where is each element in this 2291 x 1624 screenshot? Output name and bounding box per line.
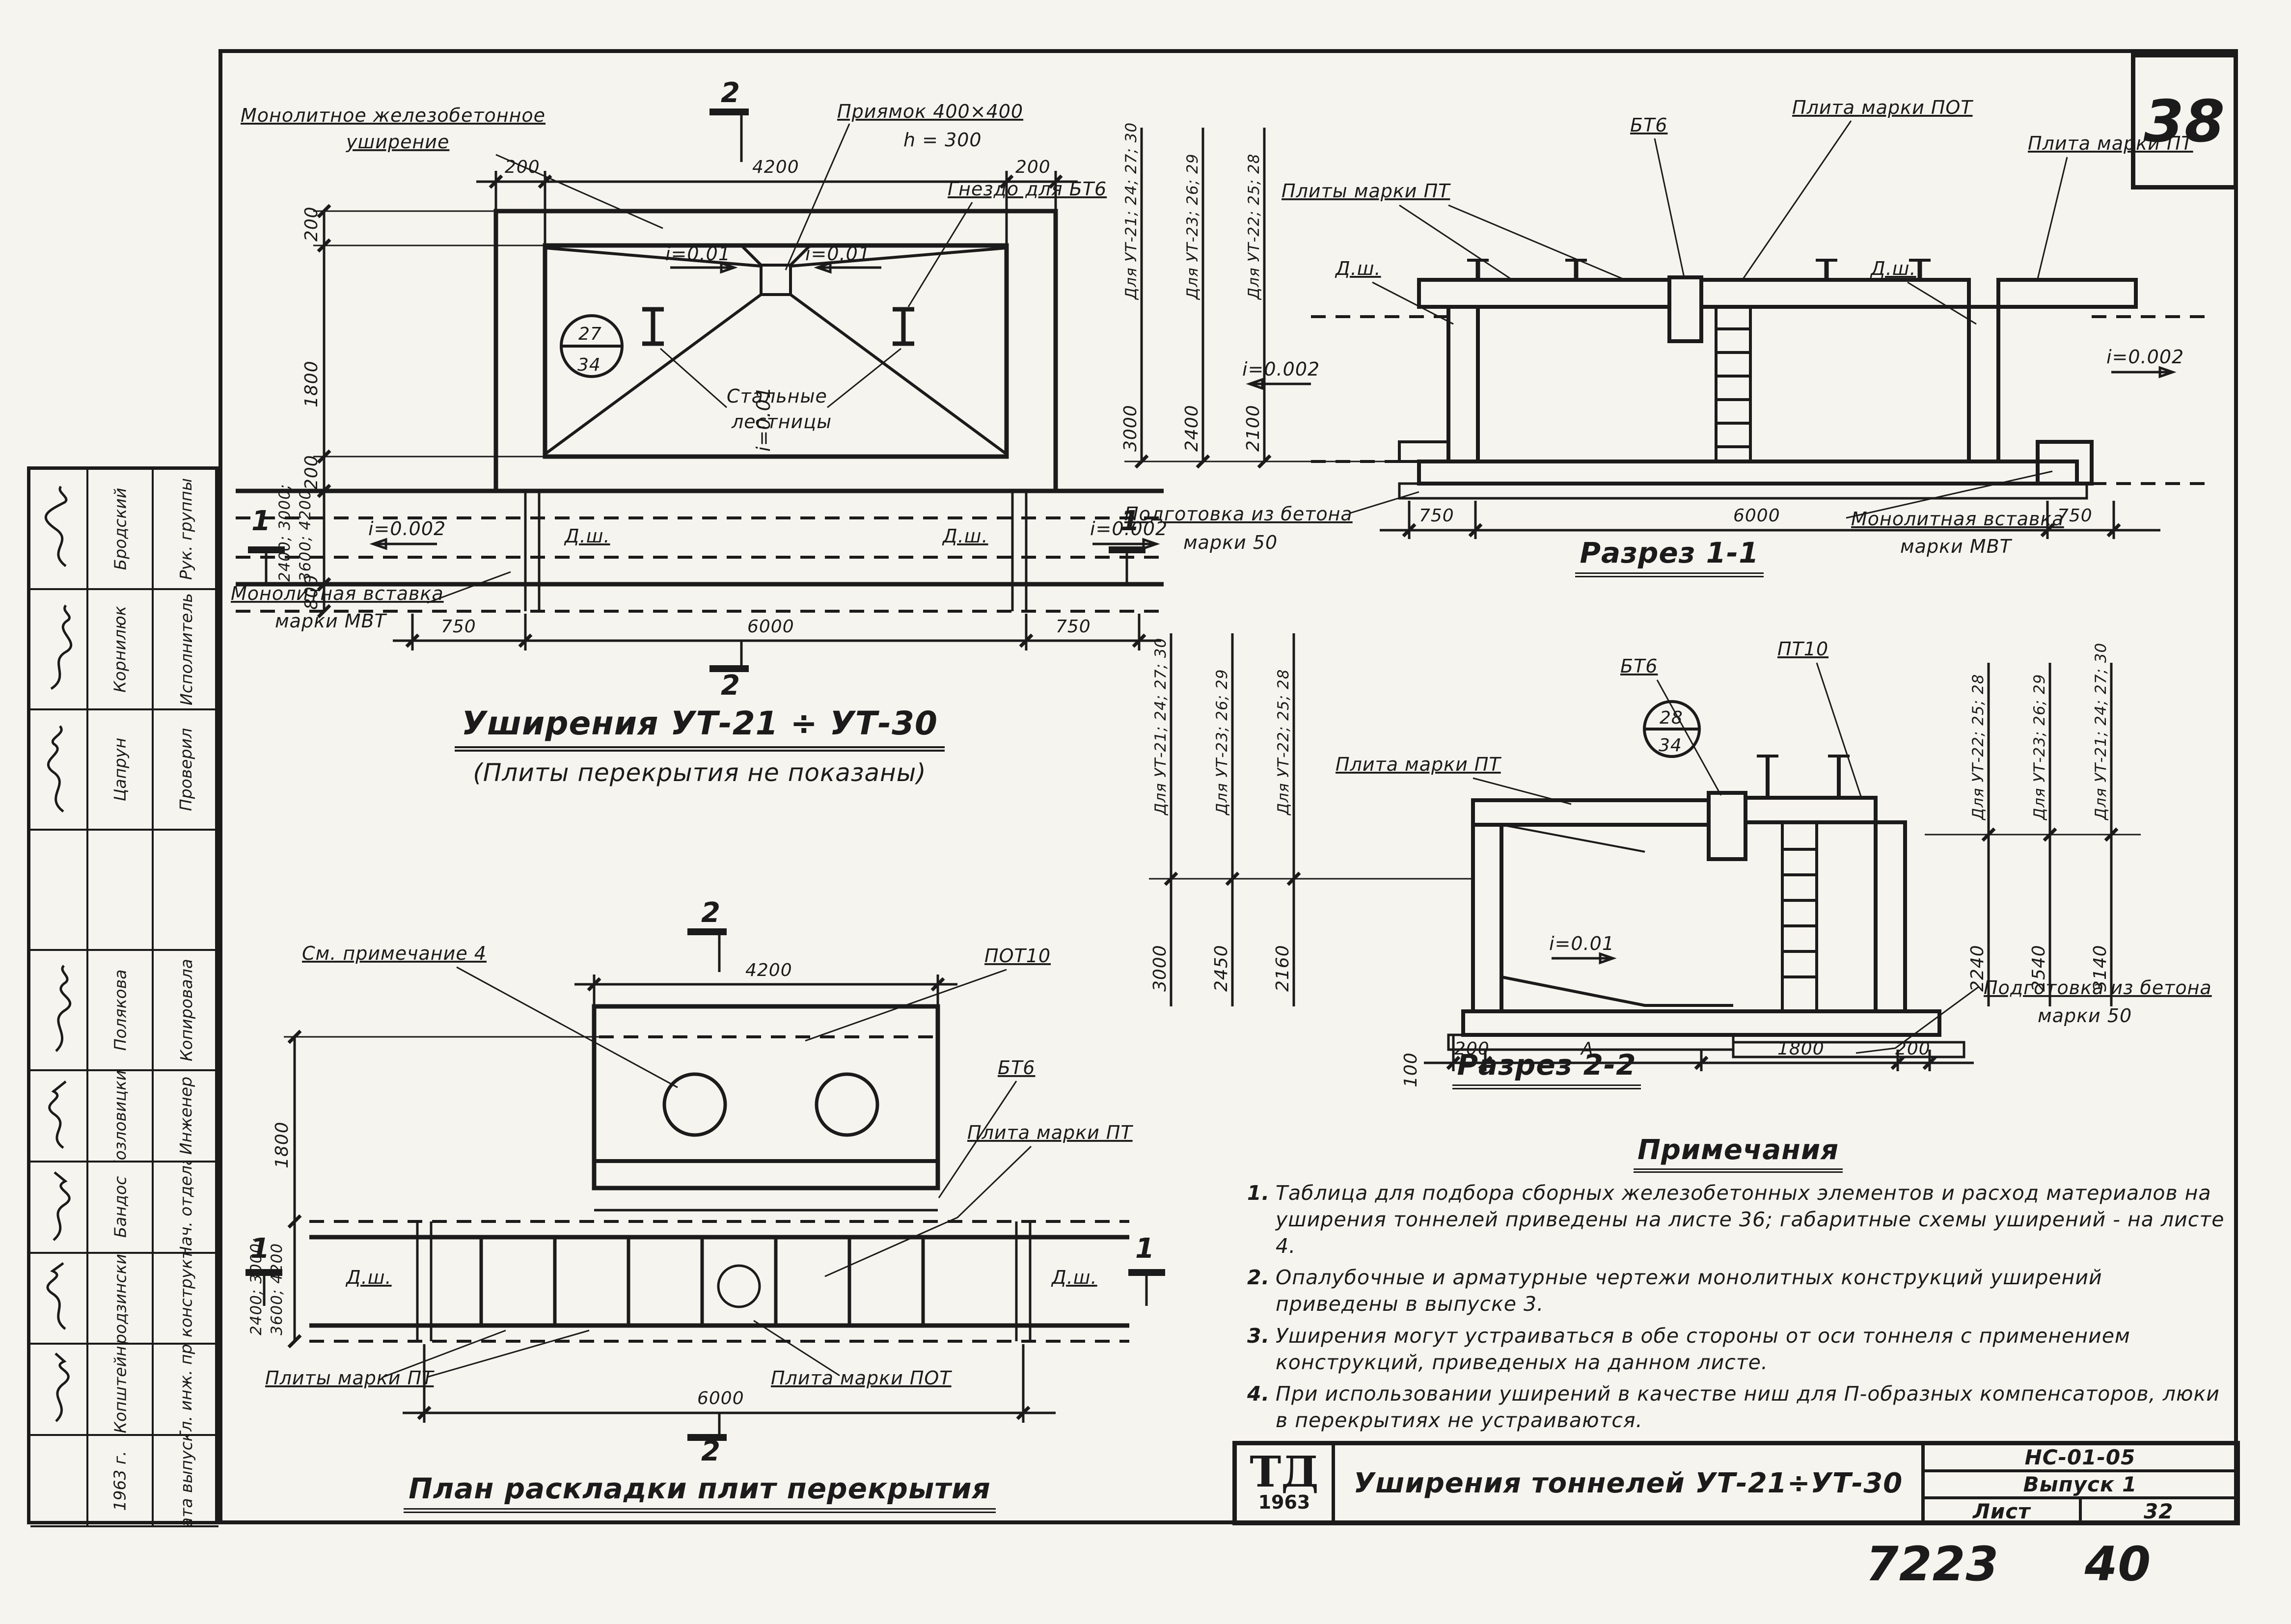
signature-icon	[44, 1353, 73, 1426]
plan-view-drawing: 2 200 4200 200	[221, 64, 1178, 697]
svg-text:Для УТ-23; 26; 29: Для УТ-23; 26; 29	[1213, 669, 1231, 816]
signature-cell	[30, 710, 88, 831]
pot-label: Плита марки ПОТ	[754, 1321, 952, 1389]
signature-icon	[44, 1170, 73, 1244]
svg-text:750: 750	[441, 617, 476, 637]
stamp-sidebar: Бродский Рук. группы Корнилюк Исполнител…	[27, 466, 218, 1524]
detail-bubble: 27 34	[561, 316, 622, 377]
svg-text:i=0.002: i=0.002	[1242, 358, 1320, 380]
hatch-opening-icon	[718, 1266, 760, 1307]
tunnel-continuation	[1311, 317, 2209, 484]
joint-labels: Д.ш. Д.ш.	[1335, 258, 1976, 324]
svg-text:i=0.01: i=0.01	[665, 243, 731, 265]
sheet-number: 32	[2082, 1499, 2236, 1523]
svg-text:1800: 1800	[272, 1121, 292, 1168]
plan-left-dimension: 200 1800 200 2400; 3000; 3600; 4200 800	[276, 205, 545, 617]
prep-label: Подготовка из бетона марки 50	[1124, 492, 1419, 553]
svg-text:ПОТ10: ПОТ10	[984, 945, 1051, 967]
svg-text:Гнездо для БТ6: Гнездо для БТ6	[948, 178, 1107, 200]
svg-text:2400; 3000;: 2400; 3000;	[276, 484, 294, 582]
svg-text:2400; 3000;: 2400; 3000;	[247, 1237, 265, 1335]
svg-text:Монолитная вставка: Монолитная вставка	[1851, 508, 2064, 530]
signature-cell	[30, 590, 88, 710]
org-logo-year: 1963	[1258, 1491, 1310, 1513]
svg-text:4200: 4200	[752, 157, 799, 177]
variant-dimensions-right: Для УТ-22; 25; 28 Для УТ-23; 26; 29 Для …	[1925, 643, 2141, 1006]
svg-text:Монолитная вставка: Монолитная вставка	[231, 583, 444, 604]
stamp-name: Бандос	[110, 1176, 130, 1238]
org-logo: ТД 1963	[1237, 1445, 1335, 1521]
signature-cell	[30, 1436, 88, 1527]
slope-labels: i=0.002 i=0.002	[1242, 346, 2184, 388]
doc-code: НС-01-05	[1925, 1445, 2236, 1472]
svg-text:Для УТ-22; 25; 28: Для УТ-22; 25; 28	[1245, 154, 1263, 300]
svg-text:200: 200	[1015, 157, 1051, 177]
signature-cell	[30, 1345, 88, 1436]
svg-text:6000: 6000	[697, 1388, 744, 1408]
pot-label: Плита марки ПОТ	[1743, 97, 1973, 279]
stamp-name: Копштейн	[110, 1346, 130, 1433]
svg-text:200: 200	[1895, 1039, 1931, 1059]
svg-text:6000: 6000	[747, 617, 794, 637]
svg-text:Д.ш.: Д.ш.	[1051, 1267, 1097, 1288]
svg-text:ПТ10: ПТ10	[1777, 638, 1828, 660]
pt-label: Плита марки ПТ	[825, 1122, 1133, 1276]
stamp-role: Инженер	[177, 1077, 196, 1155]
deformation-joints: Д.ш. Д.ш.	[525, 491, 1026, 611]
slab-plan-title: План раскладки плит перекрытия	[221, 1472, 1178, 1505]
svg-text:марки 50: марки 50	[2038, 1005, 2132, 1027]
svg-text:i=0.01: i=0.01	[805, 243, 871, 265]
svg-text:Монолитное железобетонное: Монолитное железобетонное	[241, 105, 545, 126]
svg-text:2400: 2400	[1182, 405, 1202, 452]
svg-text:Д.ш.: Д.ш.	[1335, 258, 1381, 279]
signature-icon	[41, 723, 76, 816]
svg-text:3600; 4200: 3600; 4200	[297, 489, 314, 582]
drawing-sheet: 38 Бродский Рук. группы Корнилюк Исполни…	[0, 0, 2291, 1624]
widening-section	[1448, 756, 1964, 1057]
variant-dimensions-left: Для УТ-21; 24; 27; 30 Для УТ-23; 26; 29 …	[1149, 633, 1473, 1006]
svg-text:Д.ш.: Д.ш.	[942, 525, 988, 547]
svg-text:2160: 2160	[1273, 945, 1293, 992]
ladder-icon	[1782, 822, 1817, 1011]
slab-top-dimension: 4200	[574, 960, 957, 1006]
svg-text:27: 27	[578, 324, 602, 344]
section-marker-2-bottom: 2	[709, 641, 749, 702]
svg-text:200: 200	[301, 206, 322, 242]
stamp-name: Бродский	[110, 488, 130, 570]
plan-bottom-dimension: 750 6000 750	[393, 614, 1161, 650]
stamp-name: Корнилюк	[110, 606, 130, 692]
svg-text:2: 2	[721, 670, 740, 702]
svg-text:Подготовка из бетона: Подготовка из бетона	[1124, 503, 1353, 525]
svg-text:2450: 2450	[1211, 945, 1231, 992]
signature-cell	[30, 1163, 88, 1254]
svg-text:750: 750	[1419, 506, 1454, 526]
svg-text:Приямок 400×400: Приямок 400×400	[837, 101, 1023, 122]
signature-cell	[30, 1071, 88, 1163]
document-number: 7223 40	[1866, 1537, 2220, 1592]
svg-text:3000: 3000	[1120, 405, 1141, 452]
svg-text:6000: 6000	[1733, 506, 1780, 526]
svg-text:i=0.002: i=0.002	[2106, 346, 2184, 368]
pt-label-right: Плита марки ПТ	[2028, 133, 2194, 279]
svg-text:2: 2	[701, 897, 721, 929]
stairs-label: Стальные лестницы	[660, 349, 901, 433]
svg-text:Для УТ-21; 24; 27; 30: Для УТ-21; 24; 27; 30	[1122, 122, 1140, 300]
ladder-icon	[1716, 307, 1750, 461]
org-logo-letters: ТД	[1250, 1453, 1318, 1491]
section-2-2-drawing: Для УТ-21; 24; 27; 30 Для УТ-23; 26; 29 …	[1129, 604, 2288, 1090]
svg-text:марки 50: марки 50	[1183, 532, 1278, 553]
svg-text:Для УТ-22; 25; 28: Для УТ-22; 25; 28	[1969, 674, 1987, 821]
svg-text:Д.ш.: Д.ш.	[564, 525, 610, 547]
stamp-role: Нач. отдела	[177, 1163, 196, 1254]
notes-heading: Примечания	[1247, 1134, 2229, 1166]
svg-text:Плита марки ПОТ: Плита марки ПОТ	[1792, 97, 1973, 118]
svg-text:750: 750	[2057, 506, 2093, 526]
signature-icon	[41, 483, 76, 576]
stamp-role: Исполнитель	[177, 593, 196, 705]
signature-cell	[30, 951, 88, 1071]
svg-text:марки МВТ: марки МВТ	[275, 610, 387, 632]
section-1-1-title: Разрез 1-1	[1498, 536, 1841, 569]
section-marker-1-right: 1	[1128, 1233, 1165, 1306]
svg-text:Плита марки ПТ: Плита марки ПТ	[967, 1122, 1133, 1143]
deformation-joints: Д.ш. Д.ш.	[345, 1221, 1097, 1341]
svg-text:Для УТ-21; 24; 27; 30: Для УТ-21; 24; 27; 30	[2092, 643, 2110, 821]
ceiling-slabs	[1419, 260, 2136, 341]
svg-text:34: 34	[577, 355, 601, 375]
stamp-name: Гродзинский	[110, 1254, 130, 1345]
svg-text:Плита марки ПОТ: Плита марки ПОТ	[771, 1367, 952, 1389]
note-item: 4. При использовании уширений в качестве…	[1247, 1380, 2229, 1434]
svg-text:Для УТ-23; 26; 29: Для УТ-23; 26; 29	[1184, 154, 1201, 300]
sheet-row: Лист 32	[1925, 1499, 2236, 1523]
stamp-date: 1963 г.	[110, 1451, 130, 1511]
stamp-name: Цапрун	[110, 738, 130, 801]
plan-top-dimension: 200 4200 200	[476, 157, 1078, 245]
slab-plan-drawing: 2 4200	[221, 893, 1178, 1463]
stamp-role: Проверил	[177, 728, 196, 811]
signature-cell	[30, 470, 88, 590]
svg-text:Плита марки ПТ: Плита марки ПТ	[2028, 133, 2194, 154]
svg-text:4200: 4200	[745, 960, 792, 980]
note-item: 1. Таблица для подбора сборных железобет…	[1247, 1180, 2229, 1259]
svg-text:Стальные: Стальные	[727, 385, 827, 407]
pt-plates-label: Плиты марки ПТ	[265, 1330, 589, 1389]
ladder-anchor-icons	[642, 309, 914, 344]
note-item: 2. Опалубочные и арматурные чертежи моно…	[1247, 1264, 2229, 1317]
svg-text:2: 2	[721, 77, 740, 109]
svg-text:БТ6: БТ6	[1620, 655, 1658, 677]
signature-icon	[44, 1261, 73, 1335]
stamp-role: Дата выпуска	[177, 1436, 196, 1527]
stamp-role: Гл. конструктор	[177, 1254, 196, 1345]
svg-text:1: 1	[1135, 1233, 1155, 1265]
note-item: 3. Уширения могут устраиваться в обе сто…	[1247, 1323, 2229, 1376]
svg-text:34: 34	[1659, 735, 1682, 756]
widening-outline	[496, 211, 1056, 491]
floor-slab	[1399, 442, 2092, 498]
svg-text:Плиты марки ПТ: Плиты марки ПТ	[265, 1367, 435, 1389]
section-2-2-title: Разрез 2-2	[1375, 1048, 1718, 1082]
stamp-role: Рук. группы	[177, 478, 196, 580]
svg-text:Для УТ-21; 24; 27; 30: Для УТ-21; 24; 27; 30	[1152, 638, 1170, 816]
svg-text:1800: 1800	[301, 360, 322, 407]
center-slope: i=0.01	[753, 386, 774, 452]
svg-text:См. примечание 4: См. примечание 4	[302, 943, 487, 964]
plan-subtitle: (Плиты перекрытия не показаны)	[221, 758, 1178, 787]
plan-title: Уширения УТ-21 ÷ УТ-30	[221, 704, 1178, 742]
stamp-role: Копировала	[177, 959, 196, 1061]
svg-text:Подготовка из бетона: Подготовка из бетона	[1984, 977, 2212, 999]
svg-text:2100: 2100	[1243, 405, 1263, 452]
svg-text:Для УТ-23; 26; 29: Для УТ-23; 26; 29	[2031, 674, 2048, 821]
pot-slab	[594, 1006, 938, 1210]
title-block: ТД 1963 Уширения тоннелей УТ-21÷УТ-30 НС…	[1232, 1441, 2240, 1525]
svg-text:Для УТ-22; 25; 28: Для УТ-22; 25; 28	[1275, 669, 1292, 816]
slope-label: i=0.01	[1549, 933, 1614, 963]
signature-icon	[44, 1079, 73, 1153]
note-ref-label: См. примечание 4	[302, 943, 678, 1087]
notes-block: Примечания 1. Таблица для подбора сборны…	[1247, 1134, 2229, 1438]
pt10-label: ПТ10	[1777, 638, 1861, 796]
signature-icon	[41, 964, 76, 1057]
svg-text:Плита марки ПТ: Плита марки ПТ	[1336, 754, 1501, 775]
svg-text:Д.ш.: Д.ш.	[1870, 258, 1916, 279]
stamp-role: Гл. инж. пр.	[177, 1345, 196, 1436]
pot10-label: ПОТ10	[805, 945, 1051, 1041]
sheet-label: Лист	[1925, 1499, 2082, 1523]
svg-text:уширение: уширение	[346, 131, 449, 153]
detail-bubble: 28 34	[1644, 702, 1699, 757]
signature-cell	[30, 831, 88, 951]
svg-text:БТ6: БТ6	[1630, 114, 1667, 136]
svg-text:28: 28	[1660, 708, 1683, 728]
svg-text:Плиты марки ПТ: Плиты марки ПТ	[1282, 180, 1451, 202]
stamp-name: Козловицкий	[110, 1071, 130, 1163]
signature-icon	[41, 603, 76, 696]
svg-text:1: 1	[251, 505, 271, 537]
svg-text:3000: 3000	[1150, 945, 1170, 992]
svg-text:i=0.002: i=0.002	[368, 518, 446, 540]
svg-text:Д.ш.: Д.ш.	[345, 1267, 392, 1288]
signature-cell	[30, 1254, 88, 1345]
section-1-1-drawing: Для УТ-21; 24; 27; 30 Для УТ-23; 26; 29 …	[1105, 69, 2264, 560]
pt-plates-label: Плиты марки ПТ	[1282, 180, 1625, 280]
section-marker-2-top: 2	[709, 77, 749, 162]
svg-text:марки МВТ: марки МВТ	[1900, 536, 2013, 557]
svg-text:лестницы: лестницы	[731, 411, 832, 433]
drawing-title: Уширения тоннелей УТ-21÷УТ-30	[1335, 1445, 1921, 1521]
svg-text:БТ6: БТ6	[998, 1057, 1035, 1079]
section-marker-2-top: 2	[687, 897, 727, 972]
bt6-label: БТ6	[1630, 114, 1684, 277]
svg-text:h = 300: h = 300	[903, 129, 982, 151]
slab-left-dimension: 1800 2400; 3000; 3600; 4200	[247, 1031, 599, 1347]
svg-text:1800: 1800	[1777, 1039, 1825, 1059]
svg-text:i=0.01: i=0.01	[1549, 933, 1614, 954]
stamp-name: Полякова	[110, 970, 130, 1051]
variant-dimensions-left: Для УТ-21; 24; 27; 30 Для УТ-23; 26; 29 …	[1120, 122, 1429, 467]
issue-number: Выпуск 1	[1925, 1472, 2236, 1499]
pt-label: Плита марки ПТ	[1336, 754, 1571, 804]
svg-text:750: 750	[1056, 617, 1091, 637]
svg-text:200: 200	[301, 455, 322, 490]
corridor-slopes: i=0.002 i=0.002	[368, 518, 1168, 548]
section-marker-2-bottom: 2	[687, 1413, 727, 1467]
svg-text:3600; 4200: 3600; 4200	[268, 1243, 286, 1335]
